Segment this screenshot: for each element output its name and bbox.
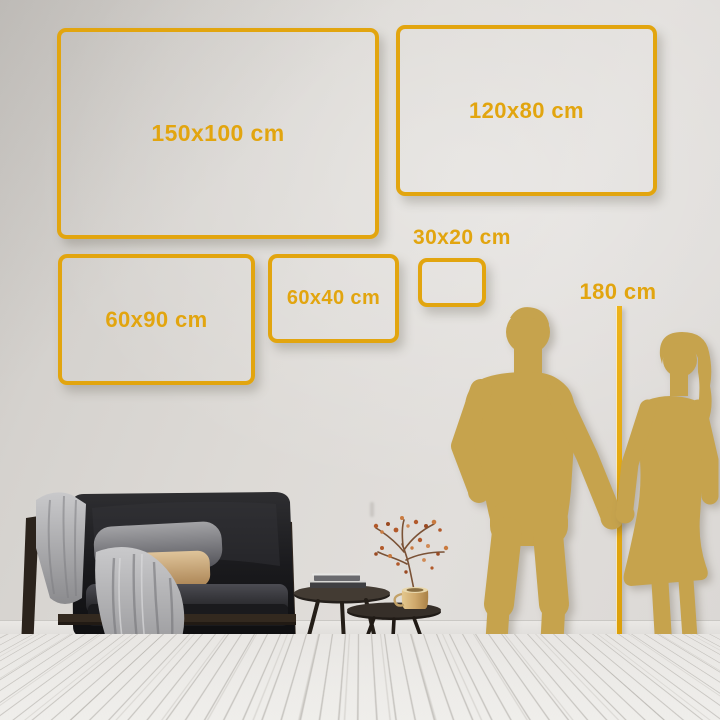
size-label-60x90: 60x90 cm [105,307,207,333]
small-table-legs [355,618,431,674]
branch-blossoms [374,516,448,574]
man-legs [494,532,554,680]
size-frame-60x40: 60x40 cm [268,254,399,343]
size-label-120x80: 120x80 cm [469,98,584,124]
man-body [465,307,575,546]
size-label-60x40: 60x40 cm [287,287,380,310]
blanket-arm [36,492,86,604]
size-frame-150x100: 150x100 cm [57,28,379,239]
size-label-150x100: 150x100 cm [151,120,284,147]
sofa [8,486,300,716]
size-frame-120x80: 120x80 cm [396,25,657,196]
woman-silhouette [598,328,720,696]
size-frame-30x20 [418,258,486,307]
table-books [308,574,366,589]
brass-vase [395,587,429,609]
size-guide-scene: 150x100 cm 120x80 cm 60x90 cm 60x40 cm 3… [0,0,720,720]
size-label-30x20: 30x20 cm [413,226,553,250]
size-frame-60x90: 60x90 cm [58,254,255,385]
coffee-tables [278,512,473,682]
dried-branch [376,520,444,590]
